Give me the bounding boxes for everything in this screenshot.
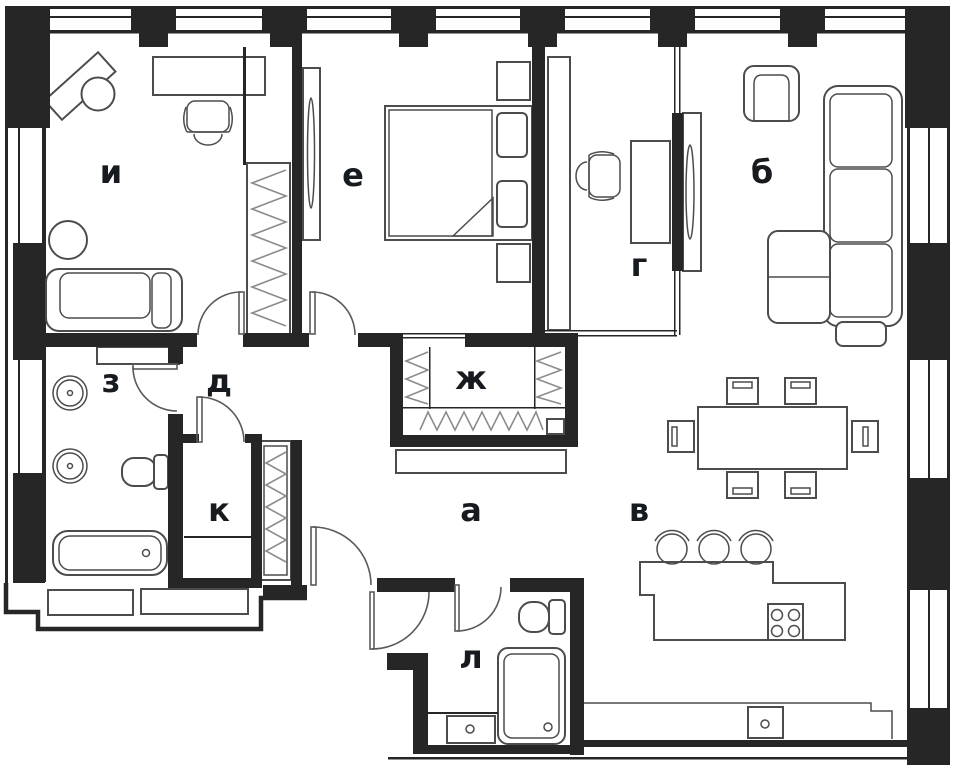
door-swing-entry-outer	[372, 592, 429, 649]
door-swing-entry-inner	[313, 527, 371, 585]
room-label-b: б	[751, 153, 773, 191]
partition-glass-top	[674, 47, 676, 113]
rail-divider	[403, 407, 565, 409]
wall-k-bottom	[168, 578, 262, 588]
room-label-g: г	[631, 246, 648, 284]
wall-e-g	[532, 33, 545, 333]
facade-pillar	[391, 6, 436, 33]
kitchen-sink	[748, 707, 783, 738]
side-table-round	[82, 78, 115, 111]
washing-machine	[447, 716, 495, 743]
desk	[631, 141, 670, 243]
closet-i-e	[247, 68, 320, 335]
room-label-k: к	[208, 491, 230, 529]
door-leaf-room-l	[455, 585, 459, 631]
partition-glass-top	[679, 47, 681, 113]
sliding-door-zh	[398, 337, 465, 339]
corner-sofa-back	[824, 86, 902, 326]
wall-l-left	[413, 670, 428, 746]
dining-chair	[852, 421, 878, 452]
door-leaf-room-k	[197, 397, 202, 442]
office-chair	[184, 101, 233, 145]
room-label-zh: ж	[455, 359, 487, 397]
wall-l-bottom	[413, 745, 584, 754]
office-chair	[576, 152, 620, 201]
room-l-furniture	[428, 600, 565, 744]
wall-closet-base	[243, 333, 309, 347]
basin	[53, 376, 87, 410]
facade-pillar	[650, 6, 695, 33]
wall-i-e-thin	[243, 47, 246, 165]
nightstand	[497, 244, 530, 282]
facade-pillar-notch	[399, 31, 428, 47]
hanging-rail-icon	[420, 412, 543, 430]
facade-pillar-notch	[528, 31, 557, 47]
room-k-furniture	[184, 441, 291, 580]
interior-walls	[45, 33, 683, 755]
wall-l-right	[570, 578, 584, 755]
facade-pillar-notch	[270, 31, 299, 47]
kitchen-counter	[580, 703, 892, 739]
bar-stool	[697, 530, 731, 564]
wall-e-left	[292, 33, 302, 347]
round-table	[49, 221, 87, 259]
wall-g-bottom	[545, 330, 677, 332]
door-leaf-room-e	[310, 292, 315, 334]
bottom-wall-kitchen	[575, 740, 915, 747]
top-inner-wall-line	[50, 30, 905, 34]
right-wall-pier	[907, 478, 950, 590]
toilet-tank	[154, 455, 168, 489]
wall-zh-right	[565, 347, 578, 435]
room-label-d: д	[206, 362, 232, 400]
door-swing-room-l	[457, 587, 501, 631]
shower-tray	[498, 648, 565, 744]
desk	[153, 57, 265, 95]
facade-pillar	[131, 6, 176, 33]
facade-pillar-notch	[788, 31, 817, 47]
kitchen-island	[640, 562, 845, 640]
top-window-glazing	[50, 16, 905, 18]
right-wall-pier	[907, 243, 950, 360]
hanging-rail-icon	[406, 352, 428, 404]
floor-plan-canvas: и е б г ж д з к а в л	[0, 0, 956, 771]
toilet-tank	[549, 600, 565, 634]
corner-pier-top-right	[905, 6, 950, 128]
door-swing-room-k	[199, 397, 244, 442]
left-wall-pier	[13, 243, 45, 360]
room-e-furniture	[385, 62, 532, 282]
sliding-door-zh	[398, 333, 465, 335]
mirror-wardrobe	[303, 68, 320, 240]
corner-pier-top-left	[5, 6, 50, 128]
basin-inner	[57, 380, 83, 406]
room-label-l: л	[459, 638, 482, 676]
wall-corridor-top-right	[358, 333, 392, 347]
entry-hall-furniture	[48, 589, 248, 615]
rail-divider	[429, 347, 431, 409]
bar-stool	[739, 530, 773, 564]
facade-pillar	[780, 6, 825, 33]
basin	[53, 449, 87, 483]
room-label-i: и	[100, 153, 122, 191]
door-leaf-entry-outer	[370, 592, 374, 649]
door-swing-room-i	[198, 292, 241, 335]
hall-cabinet	[48, 590, 133, 615]
wall-zh-bottom	[390, 435, 578, 447]
basin-drain	[68, 391, 73, 396]
pillow	[497, 181, 527, 227]
wall-k-right	[251, 434, 262, 588]
wall-z-right-upper	[168, 347, 183, 364]
counter-line	[428, 712, 498, 714]
wall-g-bottom	[545, 335, 677, 337]
storage-box	[547, 419, 564, 434]
toilet-bowl	[122, 458, 156, 486]
door-leaf-entry-inner	[311, 527, 316, 585]
room-label-a: а	[460, 491, 482, 529]
wall-corridor-top-left	[45, 333, 197, 347]
sofa	[46, 269, 182, 331]
partition-glass-bottom	[679, 271, 681, 335]
room-label-v: в	[629, 491, 649, 529]
facade-pillar	[262, 6, 307, 33]
corner-pier-bottom-right	[907, 708, 950, 765]
partition-g-b	[672, 113, 683, 271]
room-i-furniture	[45, 52, 265, 331]
facade-pillar-notch	[658, 31, 687, 47]
wall-counter	[548, 57, 570, 330]
nightstand	[497, 62, 530, 100]
right-window-glazing	[928, 128, 930, 708]
room-v-furniture	[580, 378, 892, 739]
bottom-outer-wall-line	[388, 757, 950, 760]
wall-entry	[263, 585, 307, 597]
door-swing-room-e	[312, 292, 355, 335]
wall-z-right-lower	[168, 414, 183, 588]
wall-l-top-right	[510, 578, 578, 592]
bar-stool	[655, 530, 689, 564]
shelf-line	[184, 536, 251, 538]
partition-glass-bottom	[674, 271, 676, 335]
hall-cabinet	[141, 589, 248, 614]
wall-closet-right	[291, 440, 302, 597]
pillow	[497, 113, 527, 157]
wall-l-top-left	[377, 578, 455, 592]
room-label-z: з	[102, 362, 121, 400]
sofa-armrest	[836, 322, 886, 346]
toilet-bowl	[519, 602, 549, 632]
facade-pillar	[520, 6, 565, 33]
door-swing-room-z	[133, 367, 177, 411]
left-wall-pier	[13, 473, 45, 583]
room-label-e: е	[342, 156, 364, 194]
wall-l-alcove	[387, 653, 428, 670]
door-leaf-room-i	[239, 292, 244, 334]
door-leaf-room-z	[133, 364, 177, 369]
dining-table	[698, 407, 847, 469]
right-inner-wall-line	[907, 128, 910, 708]
hanging-rail-icon	[537, 352, 561, 404]
console-shelf	[396, 450, 566, 473]
room-b-furniture	[744, 66, 902, 346]
basin-drain	[68, 464, 73, 469]
rail-divider	[534, 347, 536, 409]
facade-pillar-notch	[139, 31, 168, 47]
wall-zh-left	[390, 333, 403, 447]
basin-inner	[57, 453, 83, 479]
